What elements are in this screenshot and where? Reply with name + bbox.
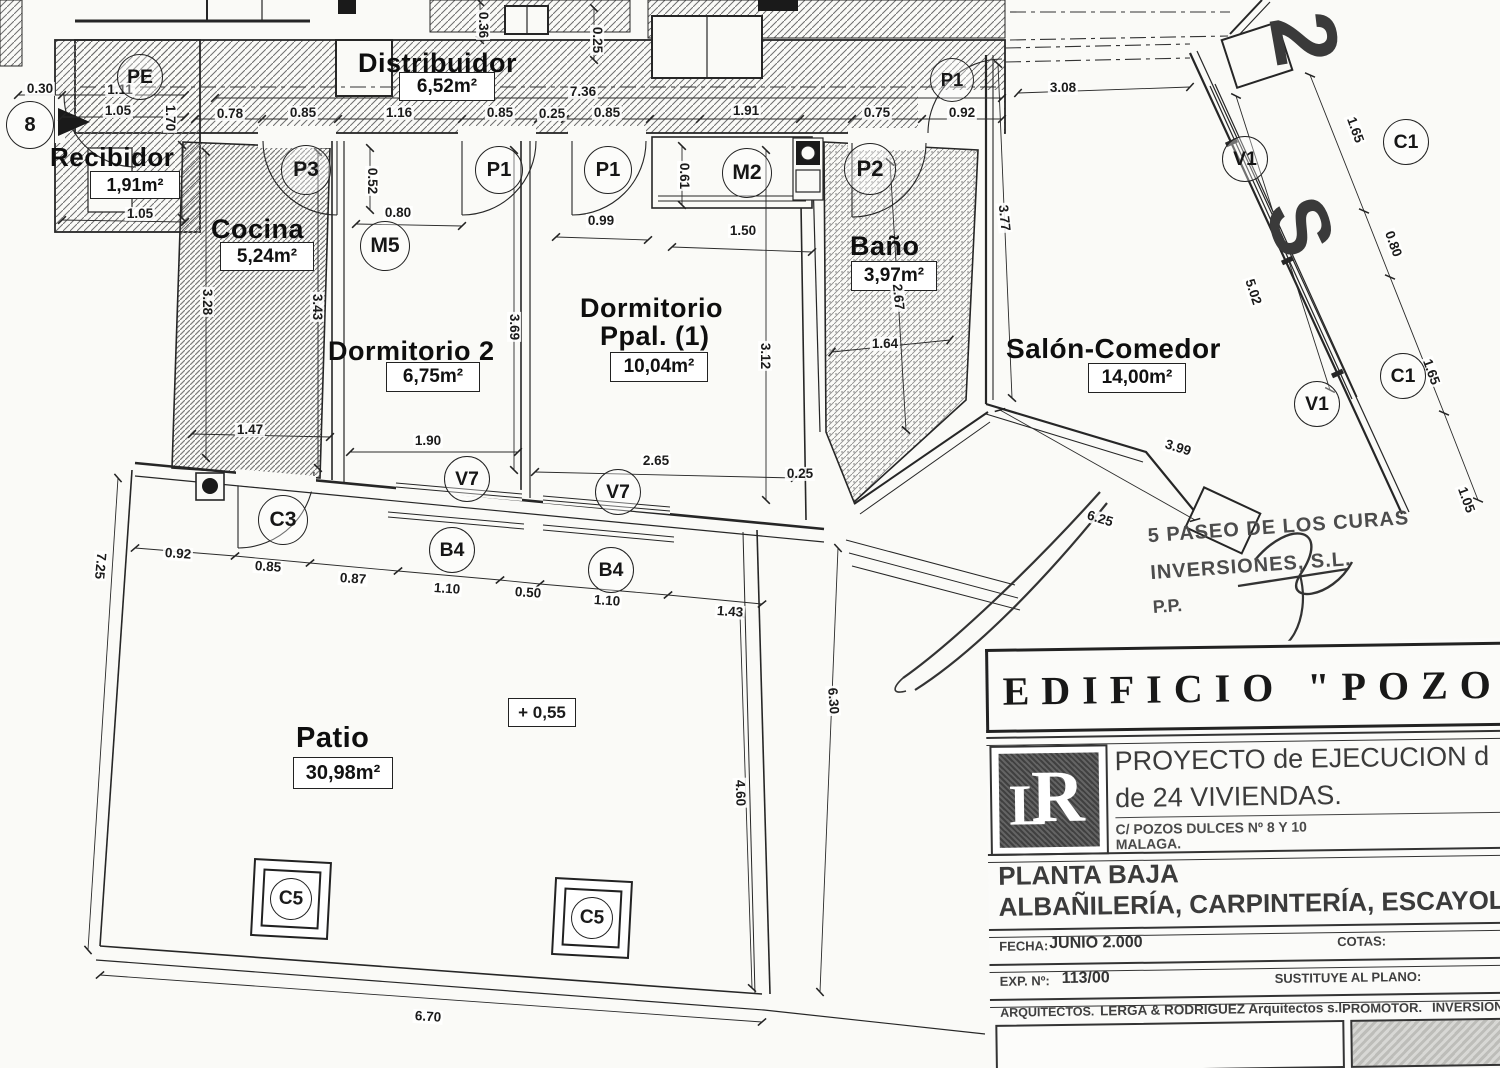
dimension-label: 0.85: [252, 559, 283, 575]
room-name-dormitorio-ppal-2: Ppal. (1): [600, 321, 710, 352]
dimension-label: 2.67: [889, 281, 906, 313]
sheet-name: PLANTA BAJA: [998, 858, 1179, 892]
address-line-1: C/ POZOS DULCES Nº 8 Y 10: [1115, 819, 1307, 838]
sustituye-label: SUSTITUYE AL PLANO:: [1275, 969, 1422, 986]
dimension-label: 0.52: [365, 166, 379, 196]
tag-b4: B4: [429, 527, 475, 573]
dimension-label: 0.30: [25, 82, 55, 96]
dimension-label: 3.77: [995, 202, 1012, 234]
tag-c1: C1: [1380, 353, 1426, 399]
fecha-label: FECHA:: [999, 938, 1048, 954]
title-block-header: EDIFICIO "POZOS: [985, 642, 1500, 733]
dimension-label: 1.64: [870, 337, 900, 351]
tag-c5: C5: [250, 858, 332, 940]
patio-boundary: [96, 470, 985, 1034]
room-area-dormitorio-ppal: 10,04m²: [610, 352, 708, 382]
tag-c1: C1: [1383, 119, 1429, 165]
room-area-patio: 30,98m²: [293, 757, 393, 789]
dimension-label: 2.65: [641, 454, 671, 468]
dimension-label: 1.90: [413, 434, 443, 448]
architect-signature-box: [995, 1020, 1345, 1068]
dimension-label: 0.25: [590, 25, 604, 55]
project-title: EDIFICIO "POZOS: [1002, 660, 1500, 714]
dimension-label: 0.50: [512, 585, 543, 601]
dimension-label: 3.12: [758, 341, 772, 371]
dimension-label: 0.75: [862, 106, 892, 120]
tag-p1: P1: [584, 146, 632, 194]
project-line-1: PROYECTO de EJECUCION d: [1114, 741, 1489, 777]
dimension-label: 1.91: [731, 104, 761, 118]
address-line-2: MALAGA.: [1116, 835, 1182, 852]
title-block: EDIFICIO "POZOS L R PROYECTO de EJECUCIO…: [985, 638, 1500, 1068]
dimension-label: 1.43: [714, 604, 745, 620]
arquitectos-label: ARQUITECTOS.: [1000, 1005, 1094, 1020]
room-area-distribuidor: 6,52m²: [399, 72, 495, 101]
dimension-label: 6.70: [412, 1009, 443, 1025]
dimension-label: 0.87: [337, 571, 368, 587]
dimension-label: 7.25: [92, 550, 109, 581]
fecha-value: JUNIO 2.000: [1049, 934, 1143, 953]
dimension-label: 0.36: [476, 10, 490, 40]
room-name-salon: Salón-Comedor: [1006, 333, 1221, 365]
tag-p3: P3: [281, 145, 331, 195]
exp-value: 113/00: [1062, 969, 1110, 988]
dimension-label: 3.43: [310, 292, 324, 322]
promoter-stamp: 5 PASEO DE LOS CURAS INVERSIONES, S.L. P…: [1147, 507, 1415, 618]
tag-m2: M2: [722, 148, 772, 198]
tag-v7: V7: [595, 469, 641, 515]
dimension-label: 0.25: [785, 467, 815, 481]
room-area-recibidor: 1,91m²: [90, 171, 180, 199]
tag-v7: V7: [444, 456, 490, 502]
tag-pe: PE: [117, 54, 163, 100]
dimension-label: 1.05: [103, 104, 133, 118]
stamp-line-2: INVERSIONES, S.L.: [1150, 544, 1413, 585]
room-name-dormitorio-ppal-1: Dormitorio: [580, 293, 723, 324]
tag-m5: M5: [360, 221, 410, 271]
tag-c5: C5: [551, 877, 633, 959]
room-name-cocina: Cocina: [211, 214, 304, 245]
floor-plan-sheet: Distribuidor 6,52m² Recibidor 1,91m² Coc…: [0, 0, 1500, 1068]
exp-label: EXP. Nº:: [1000, 973, 1050, 989]
dimension-label: 1.05: [125, 207, 155, 221]
project-line-2: de 24 VIVIENDAS.: [1115, 780, 1342, 814]
dimension-label: 3.28: [200, 287, 214, 317]
dimension-label: 0.85: [288, 106, 318, 120]
dimension-label: 1.16: [384, 106, 414, 120]
cotas-label: COTAS:: [1337, 933, 1386, 949]
arquitectos-value: LERGA & RODRIGUEZ Arquitectos s.l.: [1100, 1000, 1346, 1018]
room-area-dormitorio2: 6,75m²: [386, 362, 480, 392]
dimension-label: 3.08: [1048, 81, 1078, 95]
room-name-patio: Patio: [296, 722, 369, 755]
tag-p2: P2: [844, 143, 896, 195]
dimension-label: 1.10: [431, 581, 462, 597]
dimension-label: 0.80: [383, 206, 413, 220]
tag-b4: B4: [588, 547, 634, 593]
tag-8: 8: [6, 101, 54, 149]
dimension-label: 1.47: [235, 423, 265, 437]
level-mark: + 0,55: [508, 698, 576, 727]
dimension-label: 3.69: [507, 312, 521, 342]
dimension-label: 1.70: [163, 103, 177, 133]
tag-c3: C3: [258, 495, 308, 545]
architect-logo: L R: [989, 744, 1109, 856]
tag-v1: V1: [1222, 136, 1268, 182]
promotor-label: PROMOTOR.: [1342, 1000, 1422, 1016]
sheet-subtitle: ALBAÑILERÍA, CARPINTERÍA, ESCAYOLA: [998, 885, 1500, 923]
dimension-label: 7.36: [568, 85, 598, 99]
room-name-recibidor: Recibidor: [50, 142, 174, 173]
dimension-label: 0.99: [586, 214, 616, 228]
dimension-label: 1.10: [591, 593, 622, 609]
dimension-label: 0.61: [677, 161, 691, 191]
room-name-bano: Baño: [850, 231, 920, 262]
dimension-label: 0.92: [162, 546, 193, 562]
room-area-cocina: 5,24m²: [220, 242, 314, 271]
dimension-label: 0.85: [592, 106, 622, 120]
tag-p1: P1: [475, 146, 523, 194]
dimension-label: 4.60: [732, 778, 747, 809]
logo-letter-r: R: [1031, 755, 1086, 841]
room-area-salon: 14,00m²: [1088, 363, 1186, 393]
tag-v1: V1: [1294, 381, 1340, 427]
promoter-stamp-box: [1350, 1018, 1500, 1068]
dimension-label: 6.30: [825, 685, 841, 716]
dimension-label: 1.50: [728, 224, 758, 238]
dimension-label: 0.92: [947, 106, 977, 120]
tag-p1: P1: [930, 58, 974, 102]
promotor-value: INVERSIONE: [1432, 999, 1500, 1015]
dimension-label: 0.78: [215, 107, 245, 121]
dimension-label: 0.85: [485, 106, 515, 120]
dimension-label: 0.25: [537, 107, 567, 121]
